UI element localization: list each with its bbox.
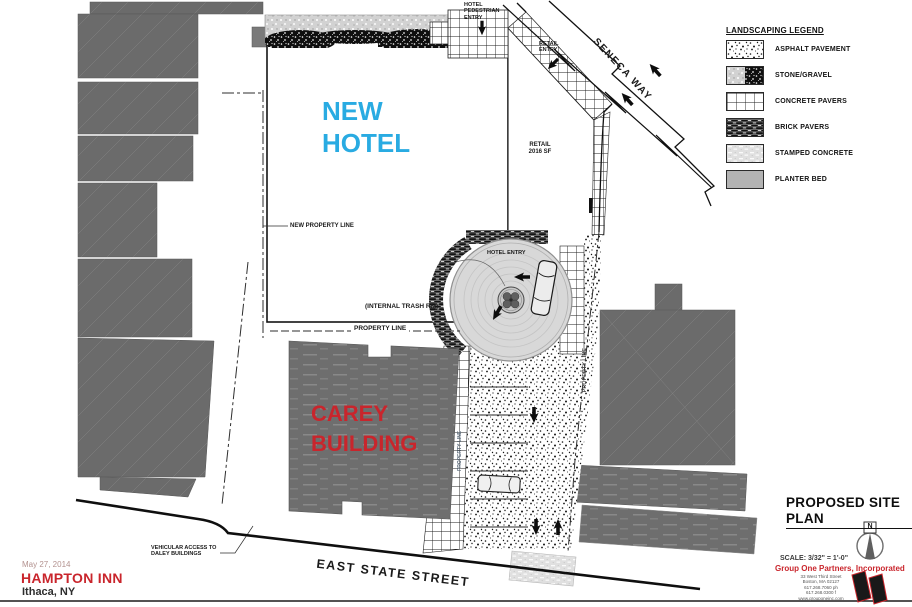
brick-pavers-swatch: [726, 118, 764, 137]
concrete-pavers-swatch: [726, 92, 764, 111]
legend-label: BRICK PAVERS: [775, 124, 829, 131]
legend-item-stamped-concrete: STAMPED CONCRETE: [726, 145, 898, 162]
legend-label: CONCRETE PAVERS: [775, 98, 847, 105]
legend-label: PLANTER BED: [775, 176, 827, 183]
legend-title: LANDSCAPING LEGEND: [726, 26, 898, 35]
project-location: Ithaca, NY: [22, 586, 75, 599]
project-title: HAMPTON INN: [21, 570, 123, 587]
legend-item-brick-pavers: BRICK PAVERS: [726, 119, 898, 136]
site-plan-page: HOTEL PEDESTRIAN ENTRY RETAIL ENTRY SENE…: [0, 0, 912, 607]
firm-address: 33 West Third Street Boston, MA 02127 61…: [788, 574, 854, 601]
scale-note: SCALE: 3/32" = 1'-0": [780, 555, 848, 563]
landscaping-legend: LANDSCAPING LEGEND ASPHALT PAVEMENT STON…: [726, 26, 898, 197]
hotel-entry-label: HOTEL ENTRY: [487, 250, 526, 256]
plan-date: May 27, 2014: [22, 560, 70, 569]
vehicular-access-label: VEHICULAR ACCESS TO DALEY BUILDINGS: [151, 545, 216, 558]
stamped-concrete-swatch: [726, 144, 764, 163]
legend-label: ASPHALT PAVEMENT: [775, 46, 851, 53]
stone-gravel-swatch: [726, 66, 764, 85]
legend-label: STONE/GRAVEL: [775, 72, 832, 79]
property-line-east-label: PROPERTY LINE: [582, 334, 588, 406]
planter-bed-swatch: [726, 170, 764, 189]
firm-name: Group One Partners, Incorporated: [775, 564, 912, 573]
property-line-bottom-label: PROPERTY LINE: [351, 325, 409, 333]
right-neighbor-buildings: [573, 284, 757, 554]
retail-sf-label: RETAIL 2016 SF: [513, 142, 567, 156]
left-neighbor-buildings: [78, 2, 269, 497]
legend-item-concrete-pavers: CONCRETE PAVERS: [726, 93, 898, 110]
legend-label: STAMPED CONCRETE: [775, 150, 853, 157]
legend-item-planter-bed: PLANTER BED: [726, 171, 898, 188]
traffic-arrow-icon: [646, 61, 663, 79]
legend-item-asphalt: ASPHALT PAVEMENT: [726, 41, 898, 58]
new-property-line-label: NEW PROPERTY LINE: [290, 223, 354, 230]
north-label: N: [864, 523, 877, 531]
parked-car-icon: [478, 475, 521, 493]
hotel-pedestrian-entry-label: HOTEL PEDESTRIAN ENTRY: [464, 2, 499, 21]
retail-entry-label: RETAIL ENTRY: [539, 41, 558, 54]
asphalt-pavement-swatch: [726, 40, 764, 59]
firm-logo: [852, 571, 887, 604]
property-line-walk-label: PROPERTY LINE: [458, 415, 464, 487]
carey-building-label: CAREY BUILDING: [311, 399, 417, 458]
new-hotel-label: NEW HOTEL: [322, 96, 410, 159]
internal-trash-label: (INTERNAL TRASH RM): [365, 303, 438, 311]
sheet-title: PROPOSED SITE PLAN: [786, 495, 912, 529]
legend-item-stone-gravel: STONE/GRAVEL: [726, 67, 898, 84]
